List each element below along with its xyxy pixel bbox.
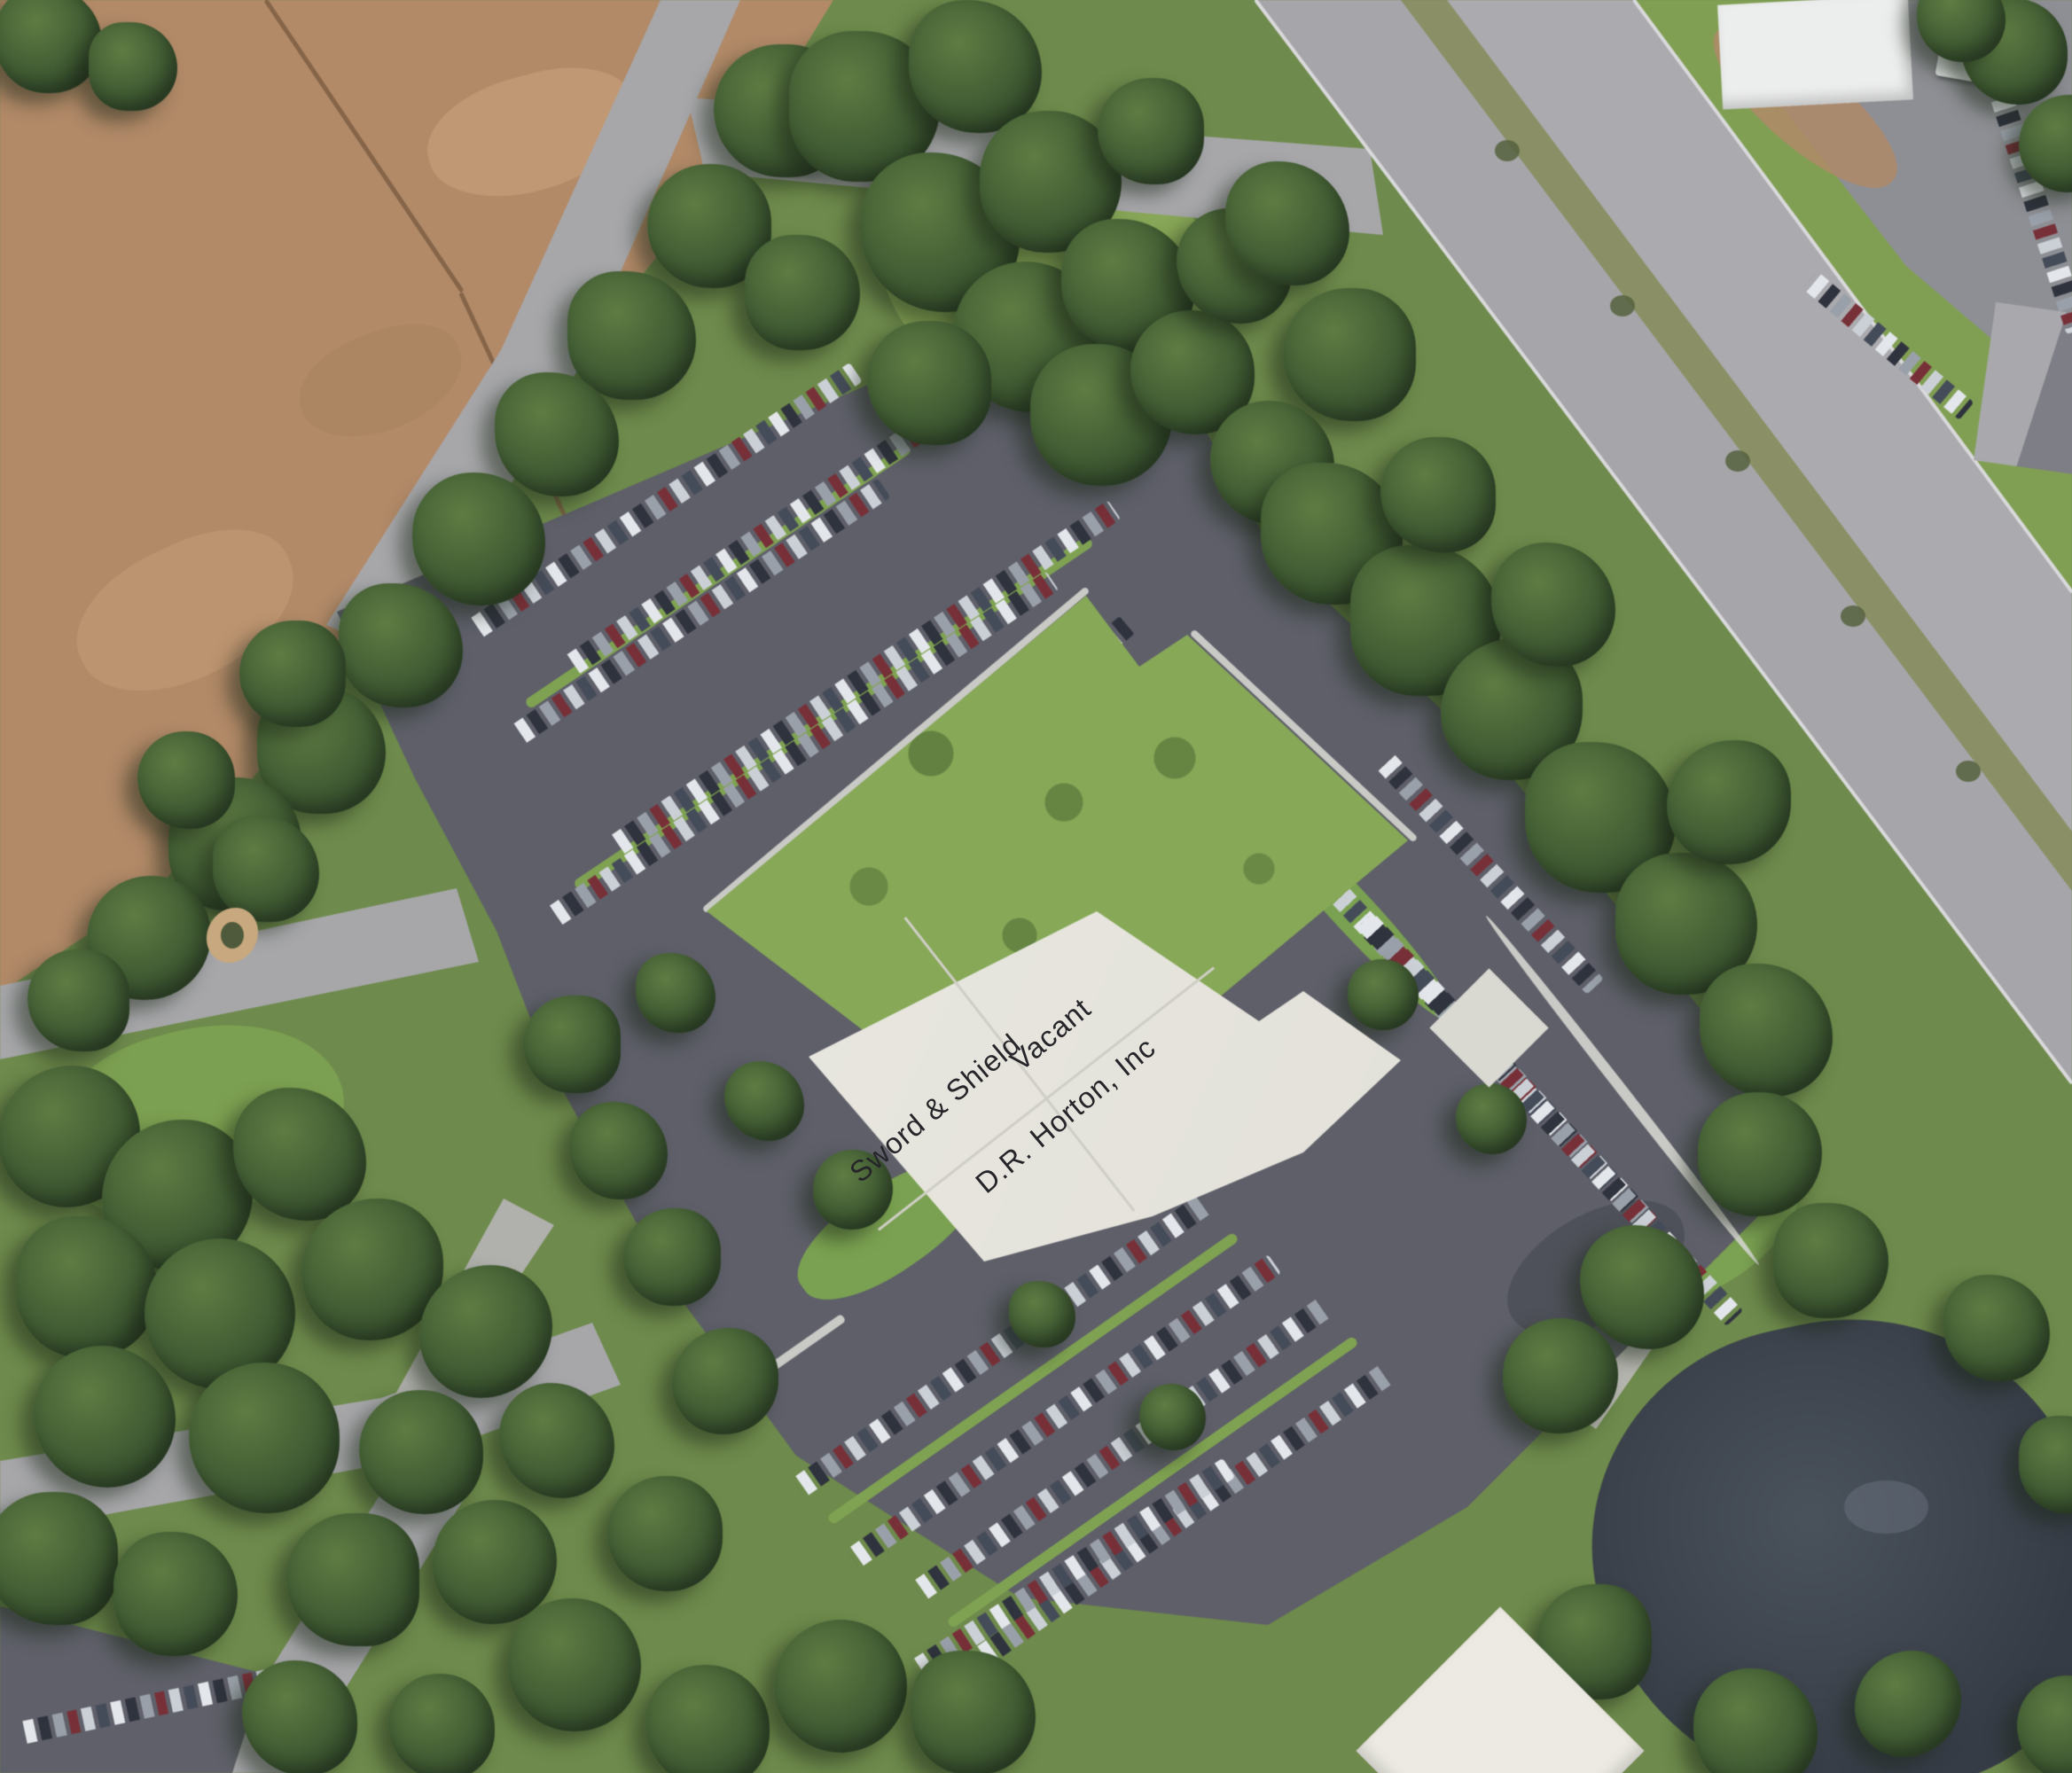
tree: [412, 473, 545, 605]
median-brush: [1841, 605, 1865, 627]
tree: [34, 1346, 176, 1488]
tree: [523, 996, 621, 1093]
tree: [636, 953, 715, 1033]
tree: [359, 1390, 483, 1514]
tree: [1693, 1668, 1818, 1773]
tree: [1098, 78, 1204, 184]
tree: [1456, 1083, 1527, 1154]
tree: [286, 1513, 419, 1646]
tree: [1855, 1651, 1961, 1757]
aerial-map: Sword & Shield Vacant D.R. Horton, Inc: [0, 0, 2072, 1773]
median-brush: [1495, 140, 1520, 161]
tree: [1283, 288, 1416, 421]
tree: [388, 1674, 495, 1773]
tree: [2017, 1675, 2072, 1773]
tree: [1503, 1318, 1618, 1433]
tree: [774, 1620, 907, 1753]
tree: [499, 1383, 614, 1498]
tree: [1700, 964, 1833, 1097]
tree: [909, 0, 1042, 133]
tree: [570, 1102, 668, 1199]
tree: [724, 1061, 804, 1141]
tree: [137, 731, 235, 829]
tree: [0, 1492, 118, 1625]
tree: [672, 1328, 778, 1434]
tree: [1698, 1092, 1822, 1216]
tree: [645, 1665, 770, 1773]
tree: [27, 949, 129, 1051]
tree: [567, 271, 696, 400]
tree: [233, 1088, 366, 1221]
tree: [1139, 1384, 1206, 1450]
tree: [1667, 740, 1791, 864]
aerial-scene: [0, 0, 2072, 1773]
tree: [433, 1500, 557, 1624]
tree: [745, 235, 860, 350]
parked-car-row: [1803, 271, 1974, 420]
parked-car-row: [18, 1668, 274, 1745]
tree: [1943, 1275, 2050, 1381]
tree: [89, 22, 177, 111]
tree: [911, 1651, 1036, 1773]
tree: [213, 816, 319, 922]
tree: [239, 621, 346, 727]
median-brush: [1610, 295, 1635, 316]
tree: [867, 321, 991, 445]
tree: [1580, 1225, 1704, 1349]
tree: [0, 0, 102, 93]
tree: [242, 1660, 357, 1773]
tree: [607, 1476, 723, 1591]
tree: [1773, 1203, 1888, 1318]
tree: [189, 1363, 340, 1513]
median-brush: [1725, 450, 1750, 472]
tree: [1348, 959, 1419, 1030]
tree: [339, 583, 463, 707]
tree: [623, 1208, 721, 1306]
median-brush: [1956, 761, 1981, 782]
tree: [113, 1532, 238, 1656]
horseshoe-center: [221, 922, 244, 949]
tree: [2019, 1416, 2072, 1513]
tree: [508, 1598, 641, 1731]
